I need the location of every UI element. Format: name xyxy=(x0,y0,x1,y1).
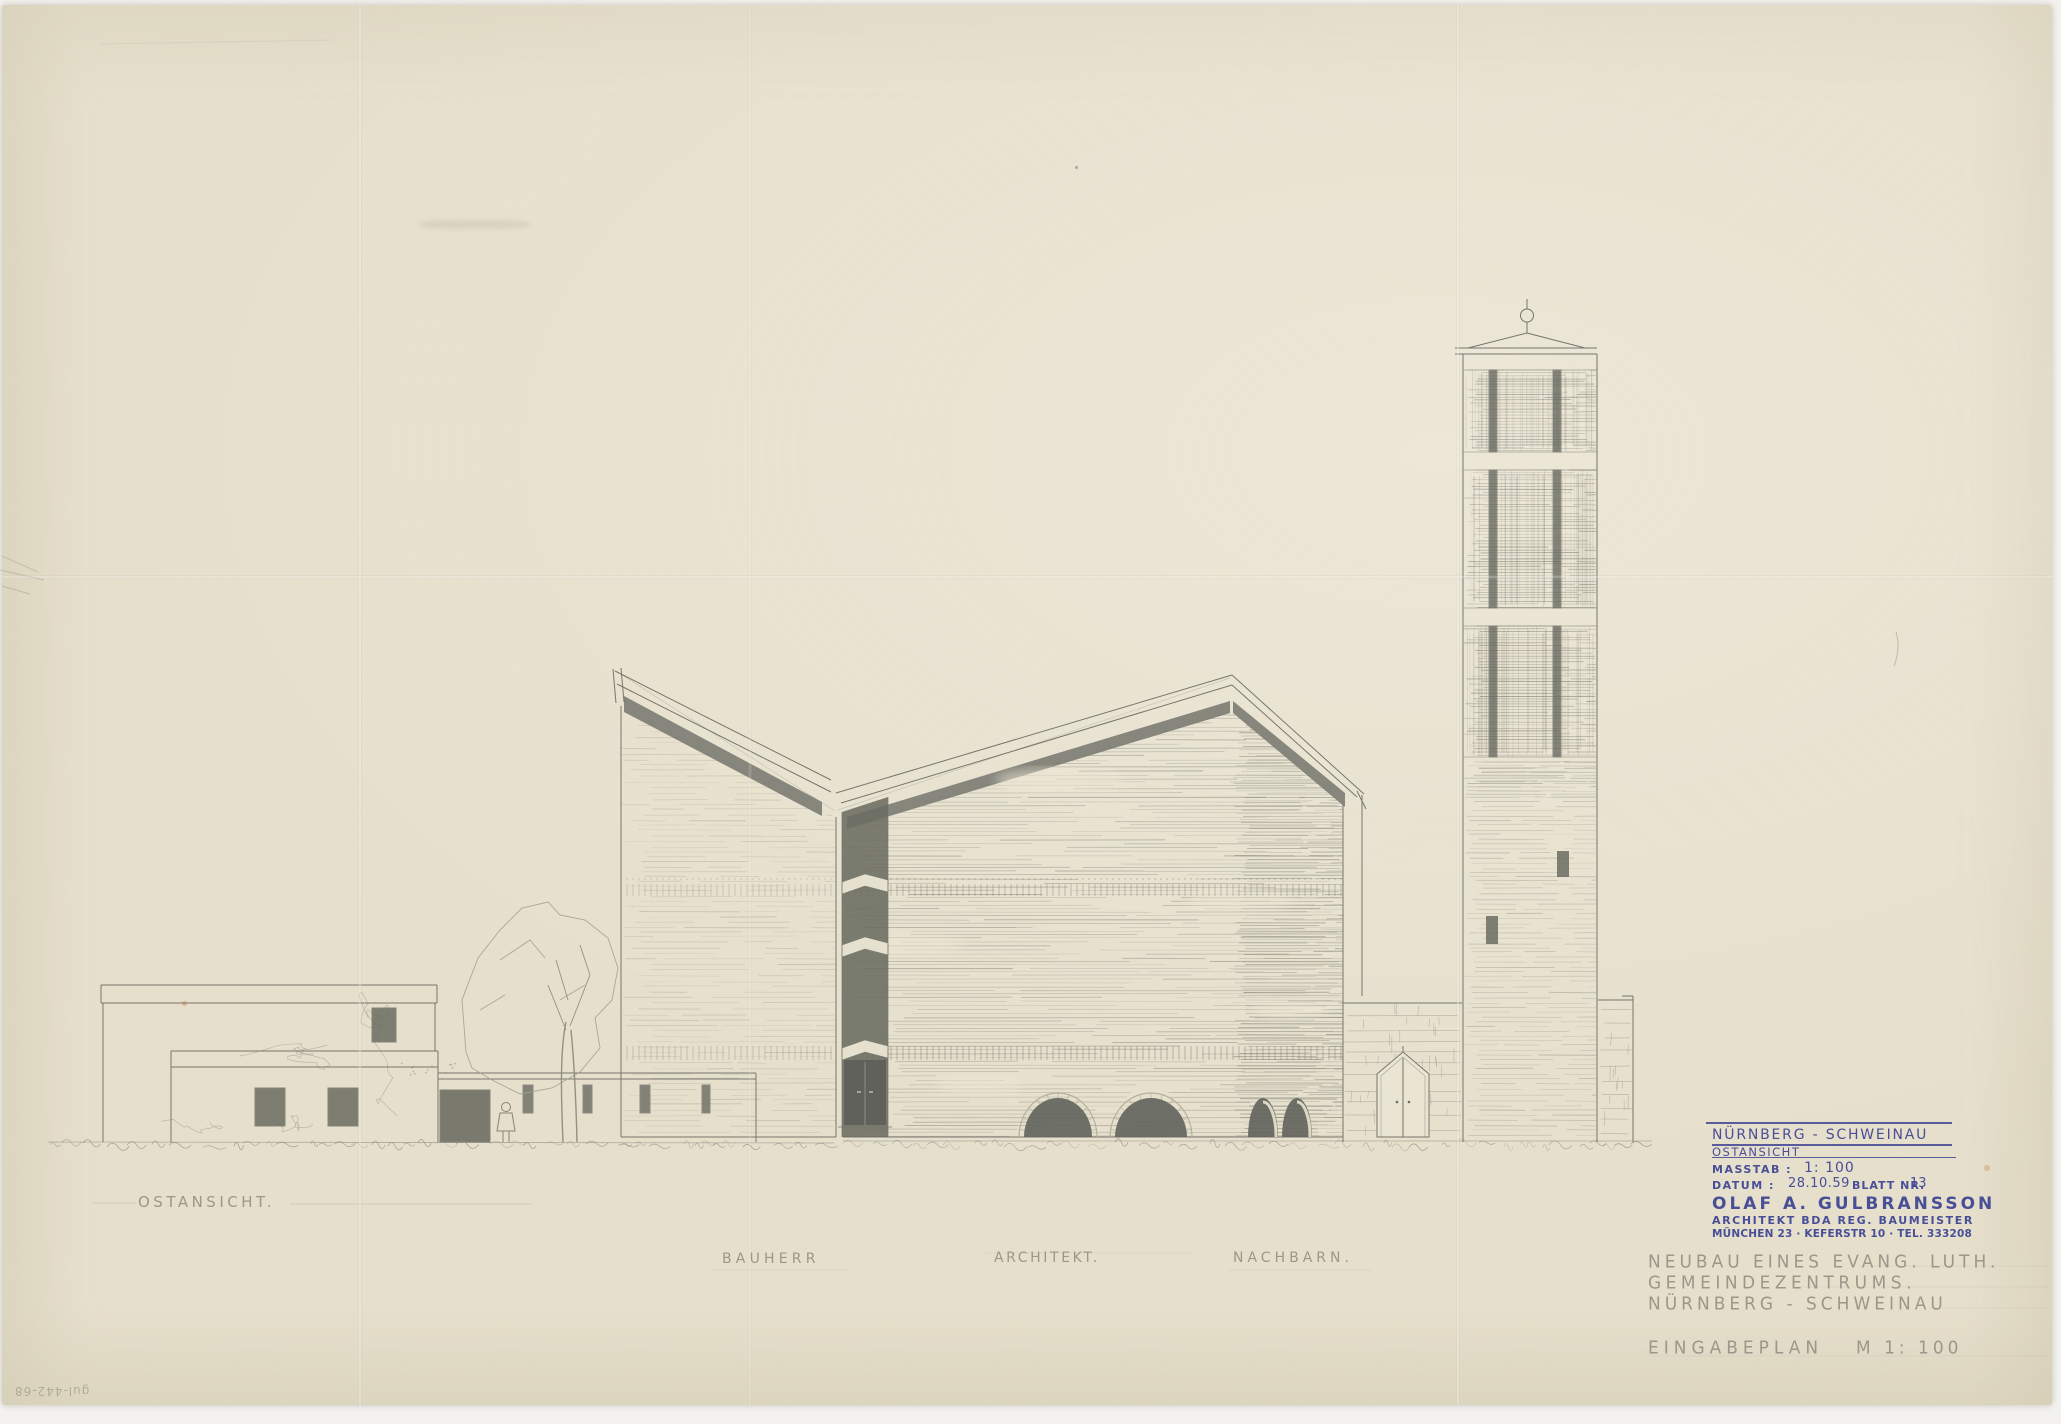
tower-slit-window xyxy=(1557,851,1569,877)
stamp-architect-title: ARCHITEKT BDA REG. BAUMEISTER xyxy=(1712,1214,1974,1227)
annex-window xyxy=(328,1088,358,1126)
stamp-datum-value: 28.10.59 xyxy=(1788,1176,1850,1191)
church-left-block xyxy=(613,668,836,1137)
stamp-architect-address: MÜNCHEN 23 · KEFERSTR 10 · TEL. 333208 xyxy=(1712,1228,1972,1240)
annex-window xyxy=(255,1088,285,1126)
stamp-masstab-value: 1: 100 xyxy=(1804,1160,1855,1176)
wall-slit-window xyxy=(523,1085,533,1113)
scanned-drawing-sheet: OSTANSICHT. BAUHERR ARCHITEKT. NACHBARN.… xyxy=(0,0,2061,1424)
stamp-architect-name: OLAF A. GULBRANSSON xyxy=(1712,1194,1995,1214)
plan-type-label: EINGABEPLAN xyxy=(1648,1337,1823,1358)
large-arch xyxy=(1115,1098,1187,1137)
stamp-masstab-label: MASSTAB : xyxy=(1712,1163,1792,1176)
title-line1: NEUBAU EINES EVANG. LUTH. xyxy=(1648,1251,1999,1272)
garden-gate xyxy=(440,1090,490,1142)
title-line2: GEMEINDEZENTRUMS. xyxy=(1648,1272,1916,1293)
architekt-label: ARCHITEKT. xyxy=(994,1250,1100,1266)
wall-slit-window xyxy=(702,1085,710,1113)
stamp-blatt-value: 13 xyxy=(1910,1176,1927,1191)
valley-window-strip xyxy=(838,797,892,1137)
human-figure-sketch xyxy=(497,1103,515,1143)
annex-window xyxy=(372,1008,396,1042)
bell-tower xyxy=(1455,299,1597,1142)
paper-blemishes xyxy=(0,40,1898,666)
view-label: OSTANSICHT. xyxy=(138,1193,275,1211)
large-arch xyxy=(1024,1098,1092,1137)
tower-finial xyxy=(1521,299,1534,333)
arch-openings xyxy=(1019,1093,1312,1137)
title-line3: NÜRNBERG - SCHWEINAU xyxy=(1648,1293,1947,1314)
stamp-datum-label: DATUM : xyxy=(1712,1179,1775,1192)
clerestory-shadow-band xyxy=(624,696,822,816)
archive-number: gul-442-68 xyxy=(14,1384,89,1398)
tower-slit-window xyxy=(1486,916,1498,944)
wall-slit-window xyxy=(640,1085,650,1113)
stamp-rule xyxy=(1712,1157,1956,1158)
nachbarn-label: NACHBARN. xyxy=(1233,1250,1353,1266)
stamp-rule xyxy=(1706,1122,1952,1124)
wall-slit-window xyxy=(583,1085,592,1113)
bauherr-label: BAUHERR xyxy=(722,1251,820,1267)
ground-grass xyxy=(48,1139,1652,1151)
plan-scale: M 1: 100 xyxy=(1856,1337,1962,1358)
stamp-location: NÜRNBERG - SCHWEINAU xyxy=(1712,1127,1928,1143)
